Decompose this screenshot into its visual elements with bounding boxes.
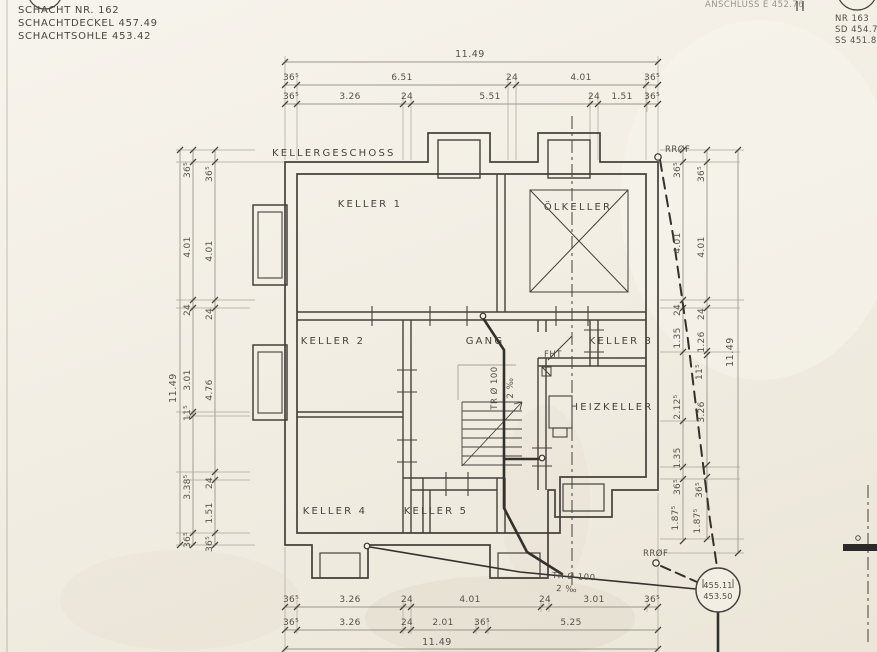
dim: 1.35 bbox=[673, 447, 683, 468]
inner-wall-face bbox=[297, 174, 646, 533]
dim: 1.26 bbox=[697, 331, 707, 352]
dim: 1.51 bbox=[611, 92, 632, 102]
dim: 36⁵ bbox=[283, 73, 299, 83]
dim-left-total: 11.49 bbox=[168, 373, 179, 403]
dim: 36⁵ bbox=[697, 166, 707, 182]
chimney-flue-2 bbox=[548, 140, 590, 178]
dim: 3.26 bbox=[339, 92, 360, 102]
dim: 6.51 bbox=[391, 73, 412, 83]
dim: 36⁵ bbox=[283, 92, 299, 102]
dim: 36⁵ bbox=[283, 595, 299, 605]
manhole-cover-level: 455.11 bbox=[703, 581, 732, 590]
nr-163-line: NR 163 bbox=[835, 14, 869, 24]
light-well-1-inner bbox=[258, 212, 282, 278]
dim: 3.01 bbox=[183, 369, 193, 390]
light-well-2-inner bbox=[258, 352, 282, 413]
dim: 4.01 bbox=[183, 236, 193, 257]
dim: 36⁵ bbox=[644, 92, 660, 102]
tr-pipe-label: TR Ø 100 bbox=[551, 570, 596, 583]
dim: 36⁵ bbox=[673, 479, 683, 495]
schachtsohle-line: SCHACHTSOHLE 453.42 bbox=[18, 31, 151, 42]
section-marker-dot bbox=[856, 536, 861, 541]
rrof-bottom-label: RRØF bbox=[643, 548, 668, 559]
rrof-top-label: RRØF bbox=[665, 144, 690, 155]
rrof-bottom-circle bbox=[653, 560, 659, 566]
dim: 24 bbox=[697, 308, 707, 320]
dim: 3.26 bbox=[697, 401, 707, 422]
floor-plan-drawing: SCHACHT NR. 162 SCHACHTDECKEL 457.49 SCH… bbox=[0, 0, 877, 652]
dim: 1.87⁵ bbox=[671, 505, 681, 530]
dim: 4.76 bbox=[205, 379, 215, 400]
room-label-keller5: KELLER 5 bbox=[404, 506, 468, 517]
stair-slope-label: 2 ‰ bbox=[506, 377, 516, 398]
room-label-keller1: KELLER 1 bbox=[338, 199, 402, 210]
room-label-keller3: KELLER 3 bbox=[589, 336, 653, 347]
dim: 36⁵ bbox=[644, 73, 660, 83]
dim: 24 bbox=[673, 304, 683, 316]
pipe-inlet-k4 bbox=[364, 543, 370, 549]
dim-right-total: 11.49 bbox=[725, 337, 736, 367]
dim: 24 bbox=[401, 618, 413, 628]
pipe-inlet-gang bbox=[480, 313, 486, 319]
dim: 36⁵ bbox=[695, 482, 705, 498]
dim: 24 bbox=[205, 308, 215, 320]
dim: 24 bbox=[183, 304, 193, 316]
dim: 2.12⁵ bbox=[673, 394, 683, 419]
anschluss-note: ANSCHLUSS E 452.76 bbox=[705, 0, 804, 10]
schachtdeckel-line: SCHACHTDECKEL 457.49 bbox=[18, 18, 158, 29]
room-label-oelkeller: ÖLKELLER bbox=[544, 200, 612, 213]
dim: 36⁵ bbox=[183, 532, 193, 548]
tr-slope-label: 2 ‰ bbox=[556, 584, 578, 595]
dim: 24 bbox=[401, 595, 413, 605]
rrof-bottom-dashed bbox=[661, 566, 697, 582]
dim: 3.38⁵ bbox=[183, 474, 193, 499]
dim: 36⁵ bbox=[205, 166, 215, 182]
chimney-flue-1 bbox=[438, 140, 480, 178]
dim: 5.25 bbox=[560, 618, 581, 628]
dim: 24 bbox=[506, 73, 518, 83]
room-label-keller2: KELLER 2 bbox=[301, 336, 365, 347]
interior-walls bbox=[297, 174, 646, 533]
dim: 2.01 bbox=[432, 618, 453, 628]
blueprint-page: SCHACHT NR. 162 SCHACHTDECKEL 457.49 SCH… bbox=[0, 0, 877, 652]
dim: 36⁵ bbox=[644, 595, 660, 605]
dim: 3.26 bbox=[339, 618, 360, 628]
pipe-inlet-heiz bbox=[539, 455, 545, 461]
dim: 5.51 bbox=[479, 92, 500, 102]
schacht-nr-line: SCHACHT NR. 162 bbox=[18, 5, 119, 16]
dim: 36⁵ bbox=[283, 618, 299, 628]
dim-bottom-total: 11.49 bbox=[422, 637, 452, 648]
dim: 3.01 bbox=[583, 595, 604, 605]
section-marker-bar bbox=[843, 544, 877, 551]
schacht-162-block: SCHACHT NR. 162 SCHACHTDECKEL 457.49 SCH… bbox=[18, 5, 158, 42]
dim: 36⁵ bbox=[205, 536, 215, 552]
dim: 3.26 bbox=[339, 595, 360, 605]
dim: 24 bbox=[401, 92, 413, 102]
dim: 24 bbox=[588, 92, 600, 102]
dim: 1.51 bbox=[205, 502, 215, 523]
stair-tr-label: TR Ø 100 bbox=[489, 366, 500, 410]
dim: 24 bbox=[205, 477, 215, 489]
dim-top-total: 11.49 bbox=[455, 49, 485, 60]
dim: 4.01 bbox=[205, 240, 215, 261]
sd-line: SD 454.76 bbox=[835, 25, 877, 35]
room-label-fht: FHT bbox=[544, 350, 562, 360]
dim: 4.01 bbox=[570, 73, 591, 83]
manhole-symbol bbox=[696, 568, 740, 612]
manhole-163-arc bbox=[837, 0, 877, 10]
dim: 24 bbox=[539, 595, 551, 605]
dim: 11⁵ bbox=[183, 405, 193, 421]
plan-title: KELLERGESCHOSS bbox=[272, 148, 396, 159]
room-label-keller4: KELLER 4 bbox=[303, 506, 367, 517]
dim: 36⁵ bbox=[474, 618, 490, 628]
dim: 11⁵ bbox=[695, 364, 705, 380]
dim: 4.01 bbox=[459, 595, 480, 605]
room-label-gang: GANG bbox=[466, 336, 505, 347]
manhole-invert-level: 453.50 bbox=[703, 592, 732, 601]
room-label-heizkeller: HEIZKELLER bbox=[571, 402, 654, 413]
dim: 4.01 bbox=[673, 232, 683, 253]
ss-line: SS 451.87 bbox=[835, 36, 877, 46]
dim: 36⁵ bbox=[673, 162, 683, 178]
dim: 4.01 bbox=[697, 236, 707, 257]
dim: 1.35 bbox=[673, 327, 683, 348]
bottom-shaft-1-inner bbox=[320, 553, 360, 578]
dim: 1.87⁵ bbox=[693, 508, 703, 533]
rrof-top-circle bbox=[655, 154, 661, 160]
dim: 36⁵ bbox=[183, 162, 193, 178]
